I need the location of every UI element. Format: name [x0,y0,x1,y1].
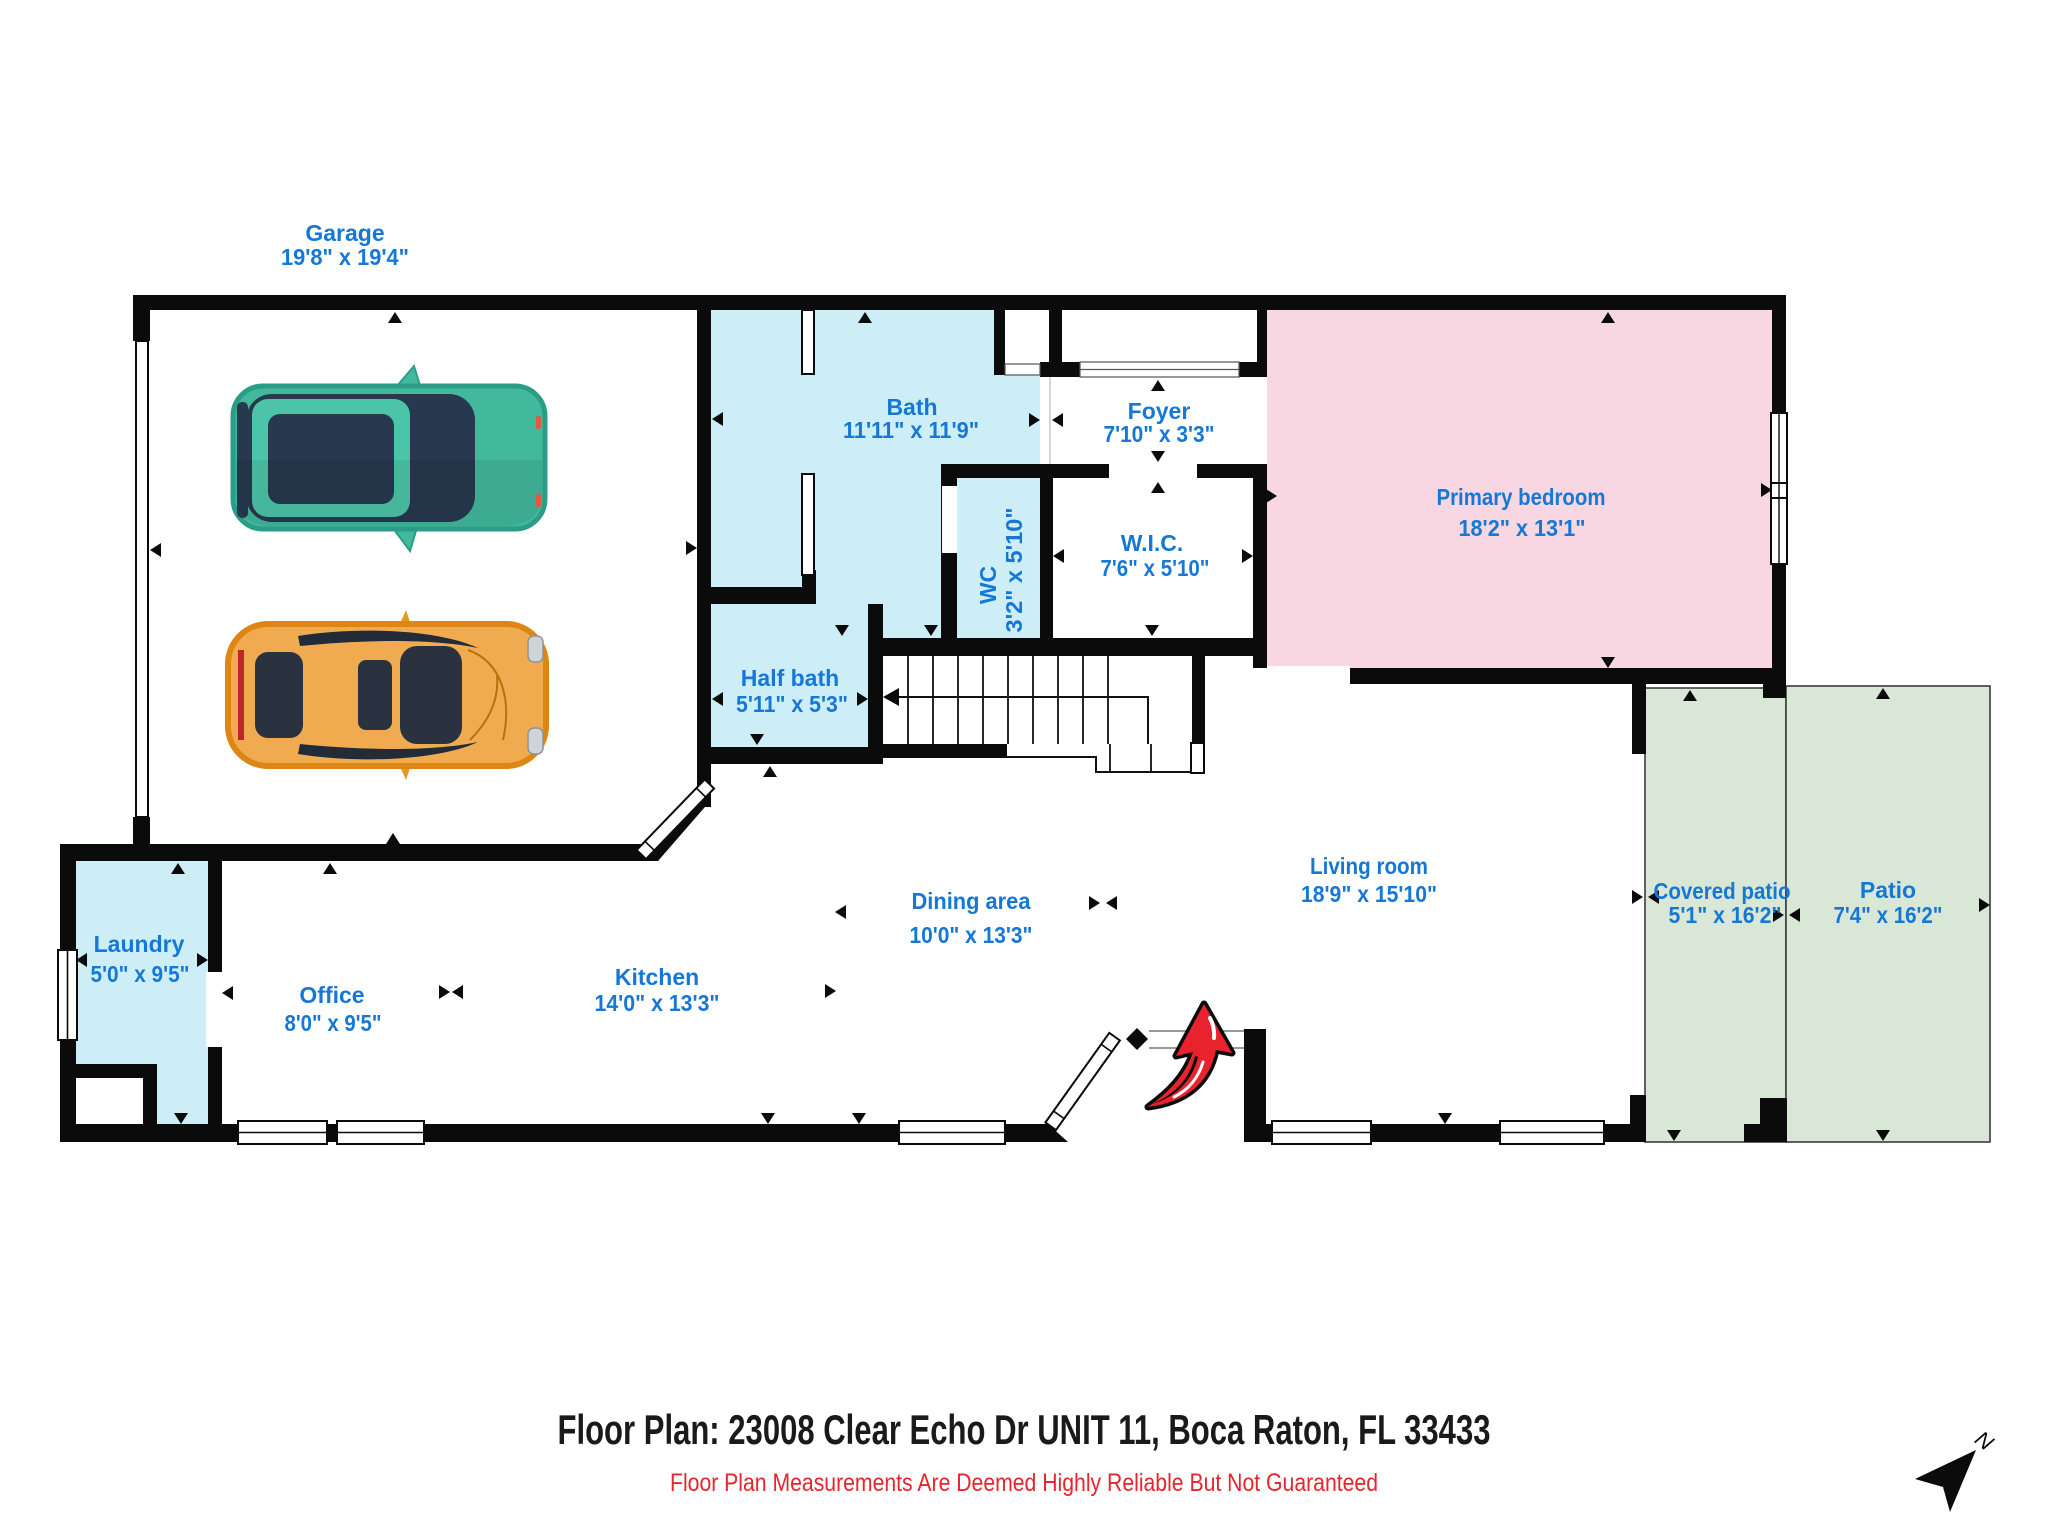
svg-text:7'4" x 16'2": 7'4" x 16'2" [1834,902,1943,928]
svg-text:7'10" x 3'3": 7'10" x 3'3" [1104,421,1215,447]
svg-text:WC: WC [975,566,1001,604]
svg-text:Floor Plan Measurements Are De: Floor Plan Measurements Are Deemed Highl… [670,1469,1378,1497]
svg-text:5'0" x 9'5": 5'0" x 9'5" [91,961,190,987]
svg-text:11'11" x 11'9": 11'11" x 11'9" [843,417,979,443]
svg-text:19'8" x 19'4": 19'8" x 19'4" [281,244,409,270]
svg-text:Office: Office [299,982,364,1008]
svg-text:14'0" x 13'3": 14'0" x 13'3" [595,990,720,1016]
svg-text:7'6" x 5'10": 7'6" x 5'10" [1101,555,1210,581]
svg-text:18'9" x 15'10": 18'9" x 15'10" [1301,881,1437,907]
svg-text:3'2" x 5'10": 3'2" x 5'10" [1001,508,1027,633]
svg-text:Half bath: Half bath [741,665,839,691]
svg-text:8'0" x 9'5": 8'0" x 9'5" [285,1010,382,1036]
svg-text:5'11" x 5'3": 5'11" x 5'3" [736,691,848,717]
svg-text:Laundry: Laundry [94,931,185,957]
svg-text:10'0" x 13'3": 10'0" x 13'3" [910,922,1033,948]
svg-text:Floor Plan: 23008 Clear Echo D: Floor Plan: 23008 Clear Echo Dr UNIT 11,… [558,1406,1491,1453]
svg-text:Covered patio: Covered patio [1654,878,1791,904]
svg-text:Patio: Patio [1860,877,1916,903]
svg-text:W.I.C.: W.I.C. [1121,530,1184,556]
svg-text:Living room: Living room [1310,853,1428,879]
svg-text:Kitchen: Kitchen [615,964,699,990]
svg-text:Primary bedroom: Primary bedroom [1437,484,1606,510]
svg-text:Garage: Garage [305,220,384,246]
svg-text:Dining area: Dining area [912,888,1031,914]
svg-text:5'1" x 16'2": 5'1" x 16'2" [1669,902,1782,928]
svg-text:18'2" x 13'1": 18'2" x 13'1" [1459,515,1586,541]
